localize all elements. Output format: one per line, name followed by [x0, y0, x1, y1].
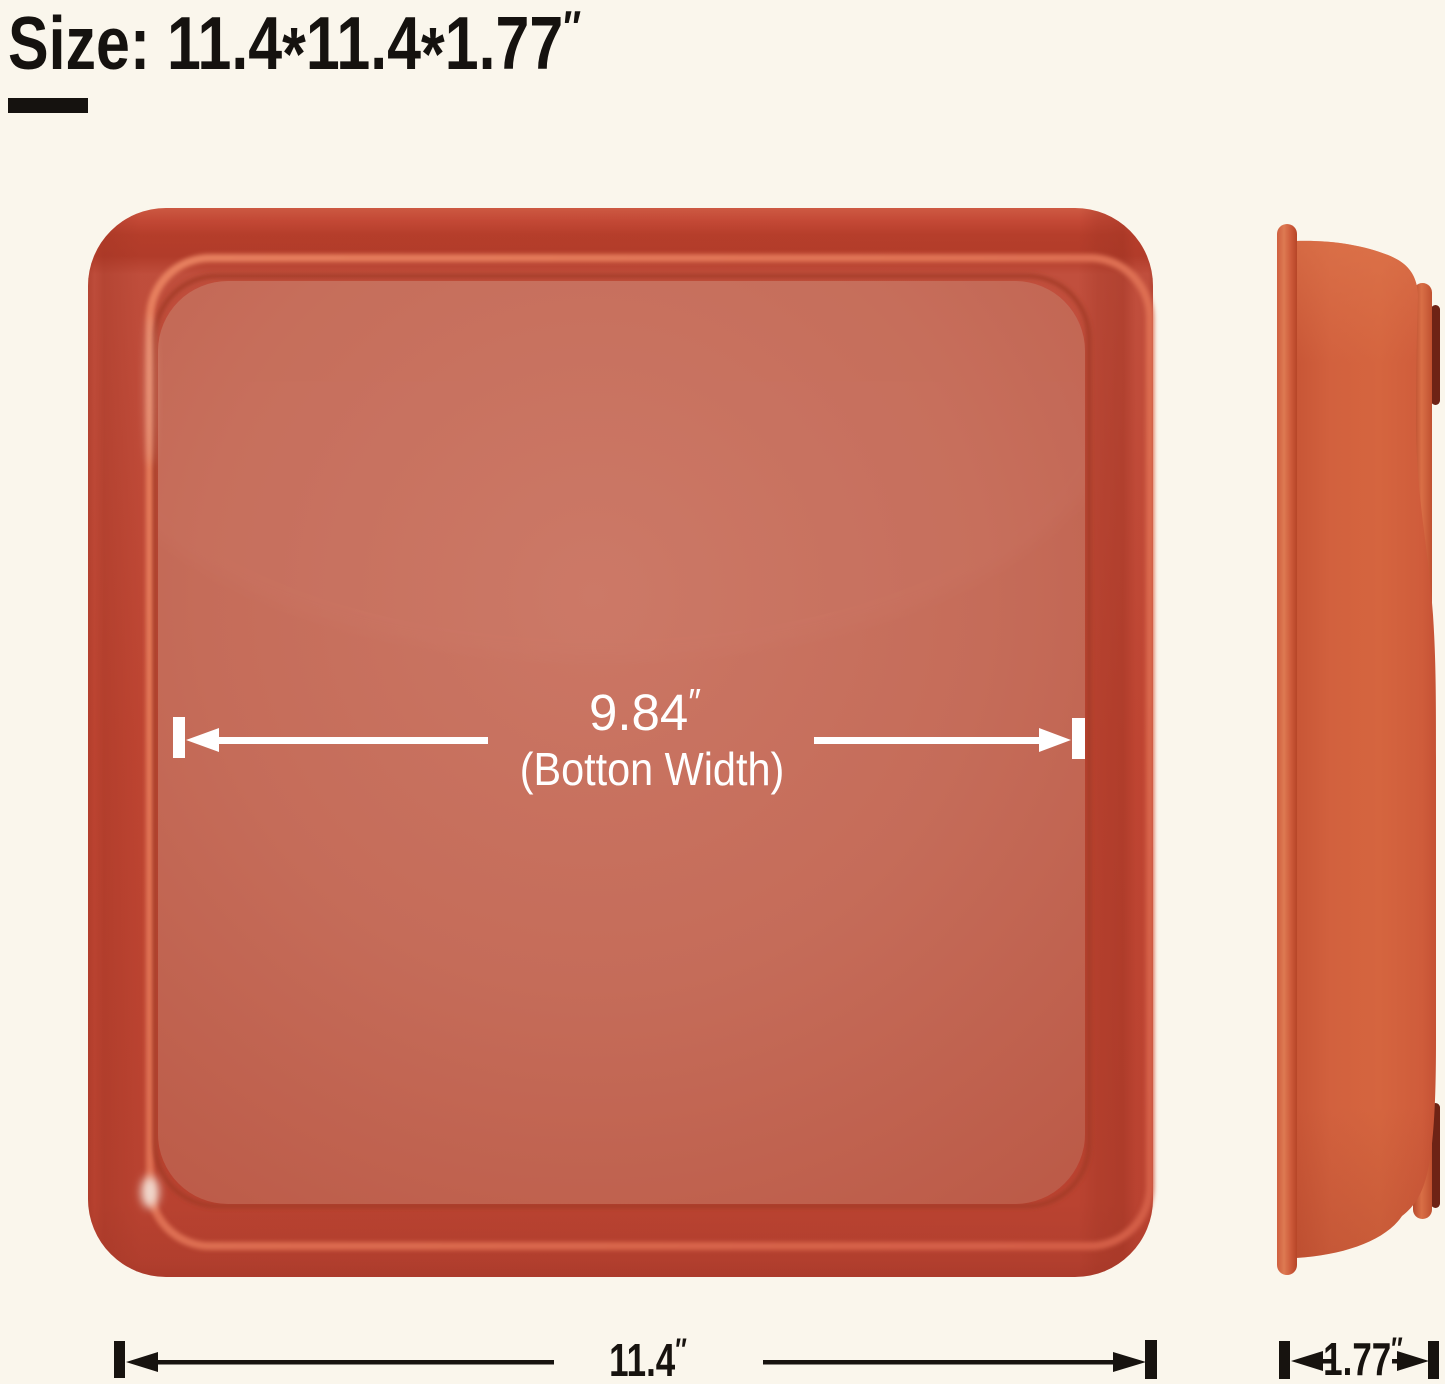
svg-text:9.84″: 9.84″: [589, 681, 701, 741]
svg-text:(Botton Width): (Botton Width): [520, 744, 785, 796]
svg-text:1.77″: 1.77″: [1323, 1332, 1403, 1384]
svg-text:Size: 11.4*11.4*1.77″: Size: 11.4*11.4*1.77″: [8, 1, 581, 96]
